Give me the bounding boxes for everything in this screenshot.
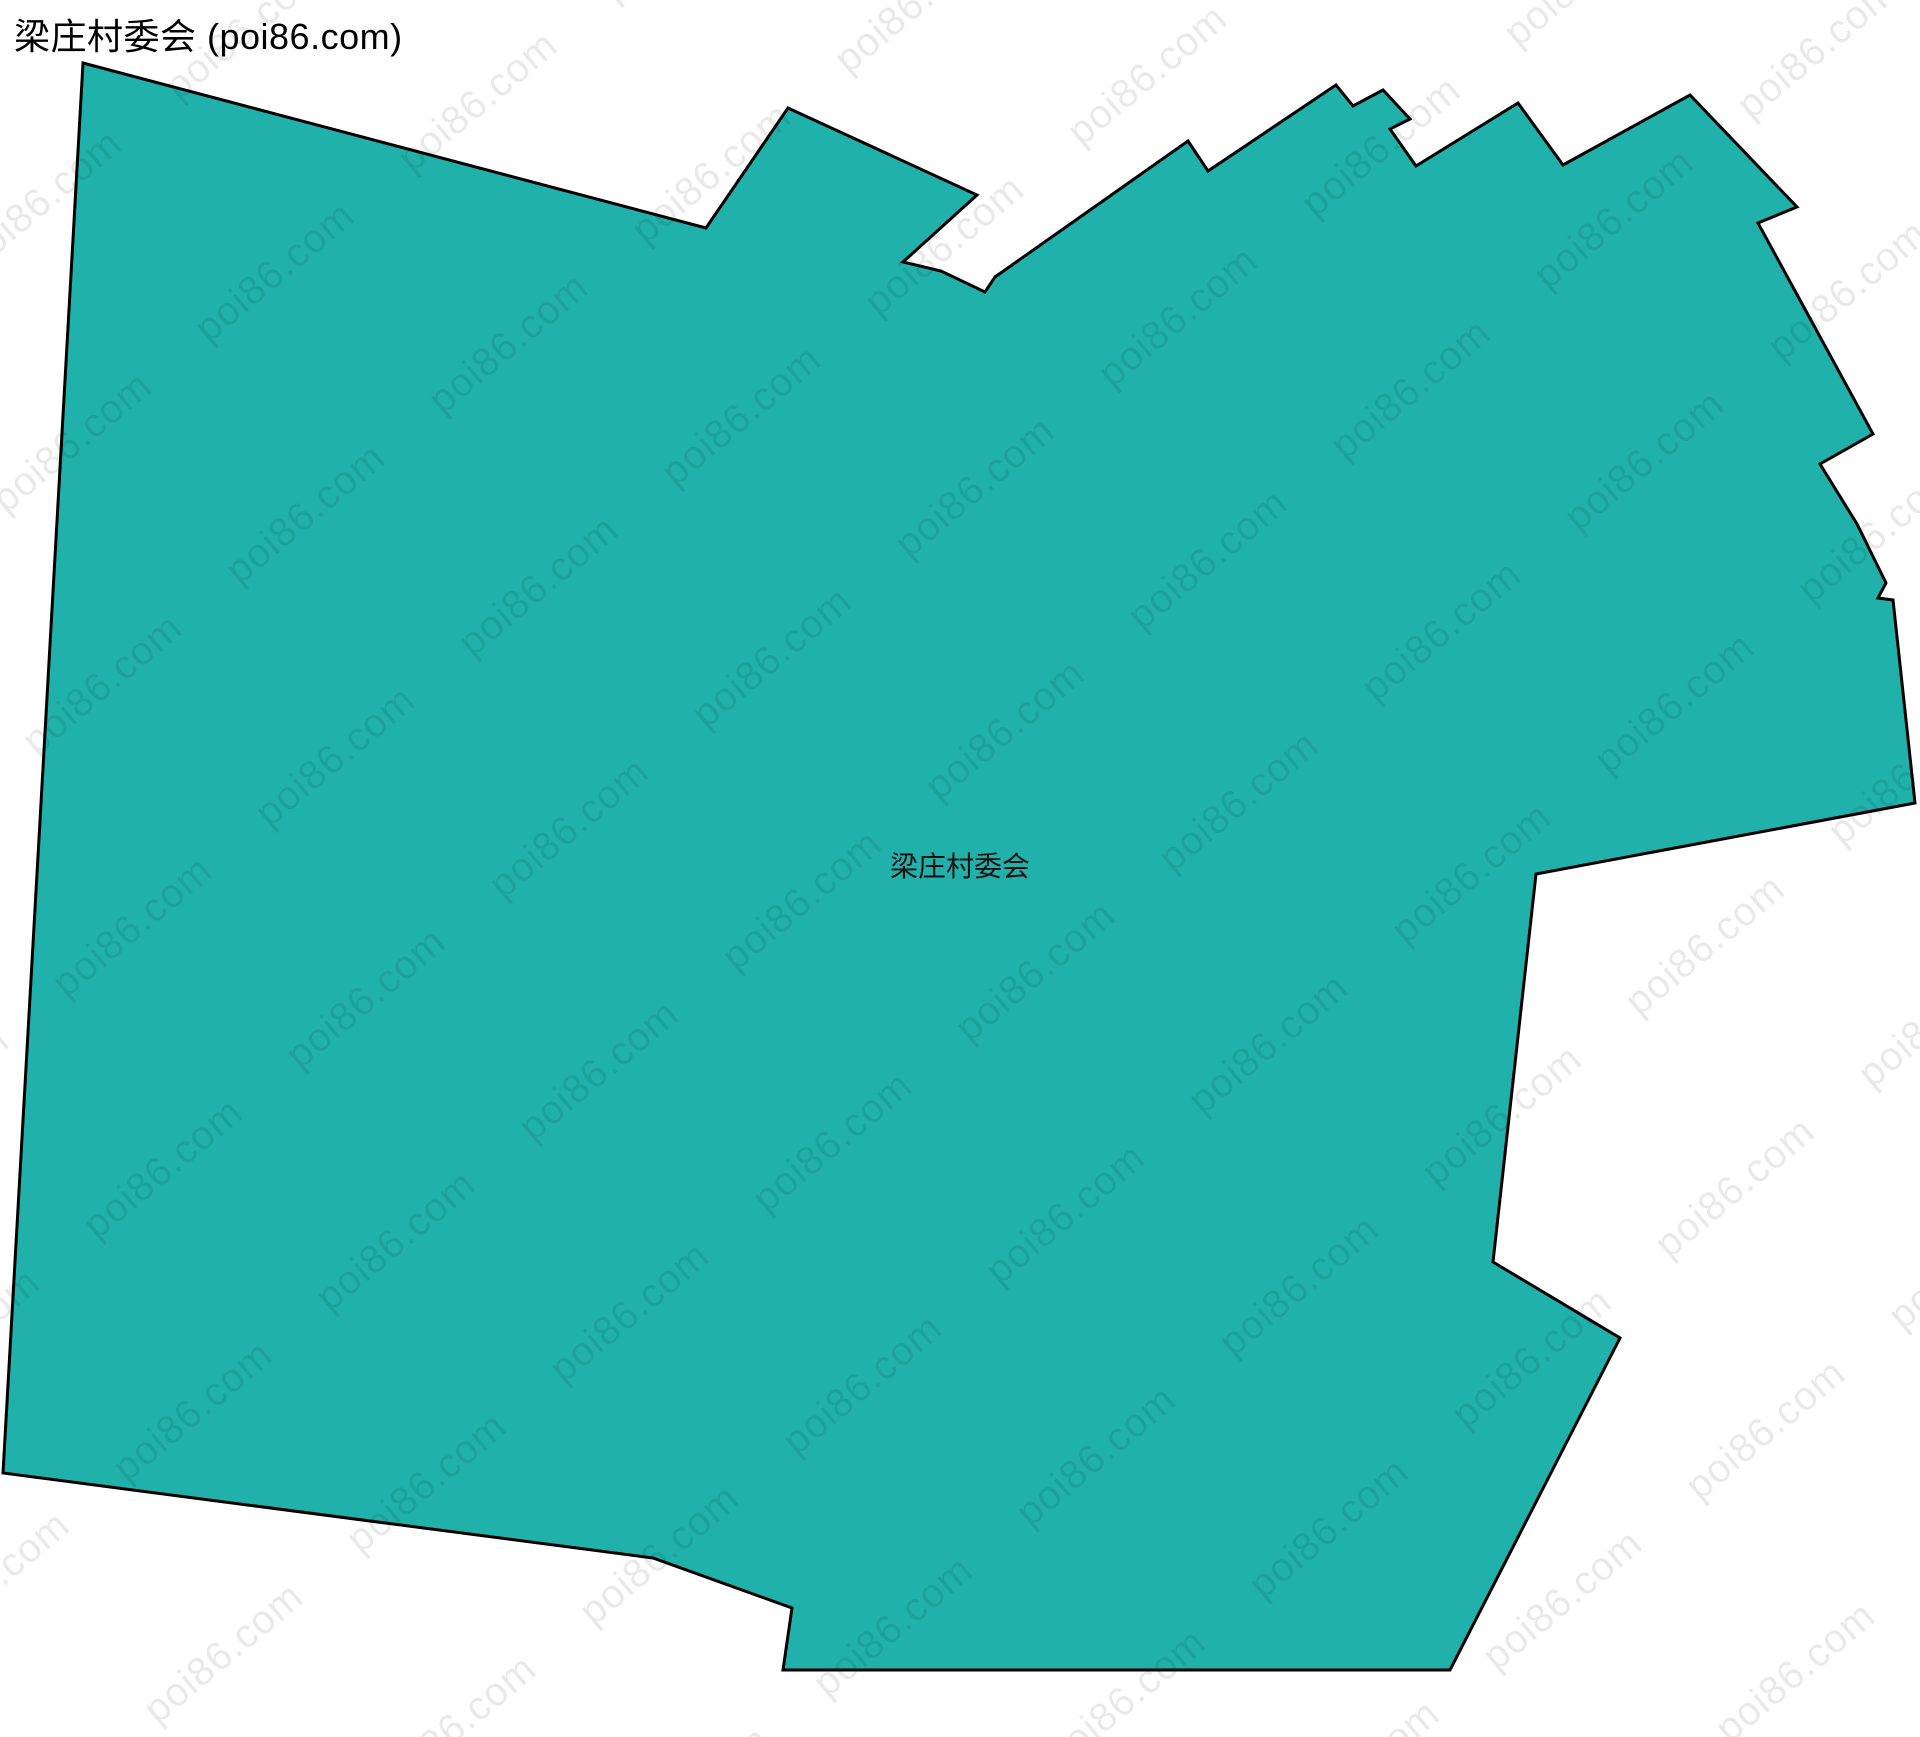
region-label: 梁庄村委会 bbox=[890, 851, 1030, 882]
map-canvas: 梁庄村委会 poi86.compoi86.compoi86.compoi86.c… bbox=[0, 0, 1920, 1737]
page-title: 梁庄村委会 (poi86.com) bbox=[14, 8, 403, 60]
boundary-map: 梁庄村委会 bbox=[0, 0, 1920, 1737]
